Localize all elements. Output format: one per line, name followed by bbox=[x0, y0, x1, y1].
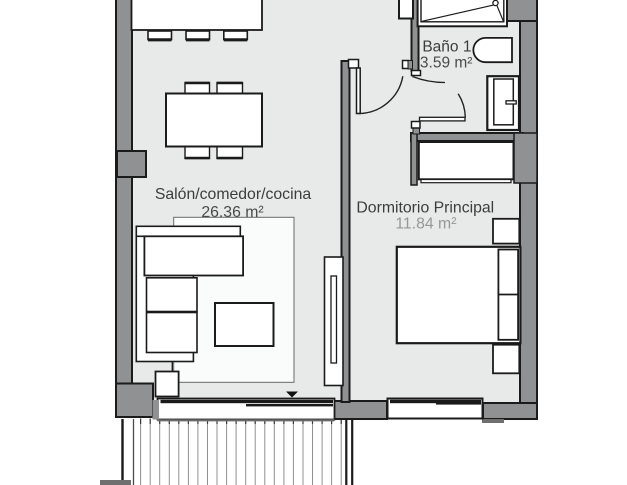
svg-text:11.84 m²: 11.84 m² bbox=[395, 216, 456, 233]
svg-text:26.36 m²: 26.36 m² bbox=[201, 204, 263, 221]
svg-text:Baño 1: Baño 1 bbox=[422, 39, 471, 56]
svg-text:Salón/comedor/cocina: Salón/comedor/cocina bbox=[155, 186, 312, 203]
svg-text:Dormitorio Principal: Dormitorio Principal bbox=[356, 199, 494, 216]
svg-text:3.59 m²: 3.59 m² bbox=[420, 55, 473, 72]
